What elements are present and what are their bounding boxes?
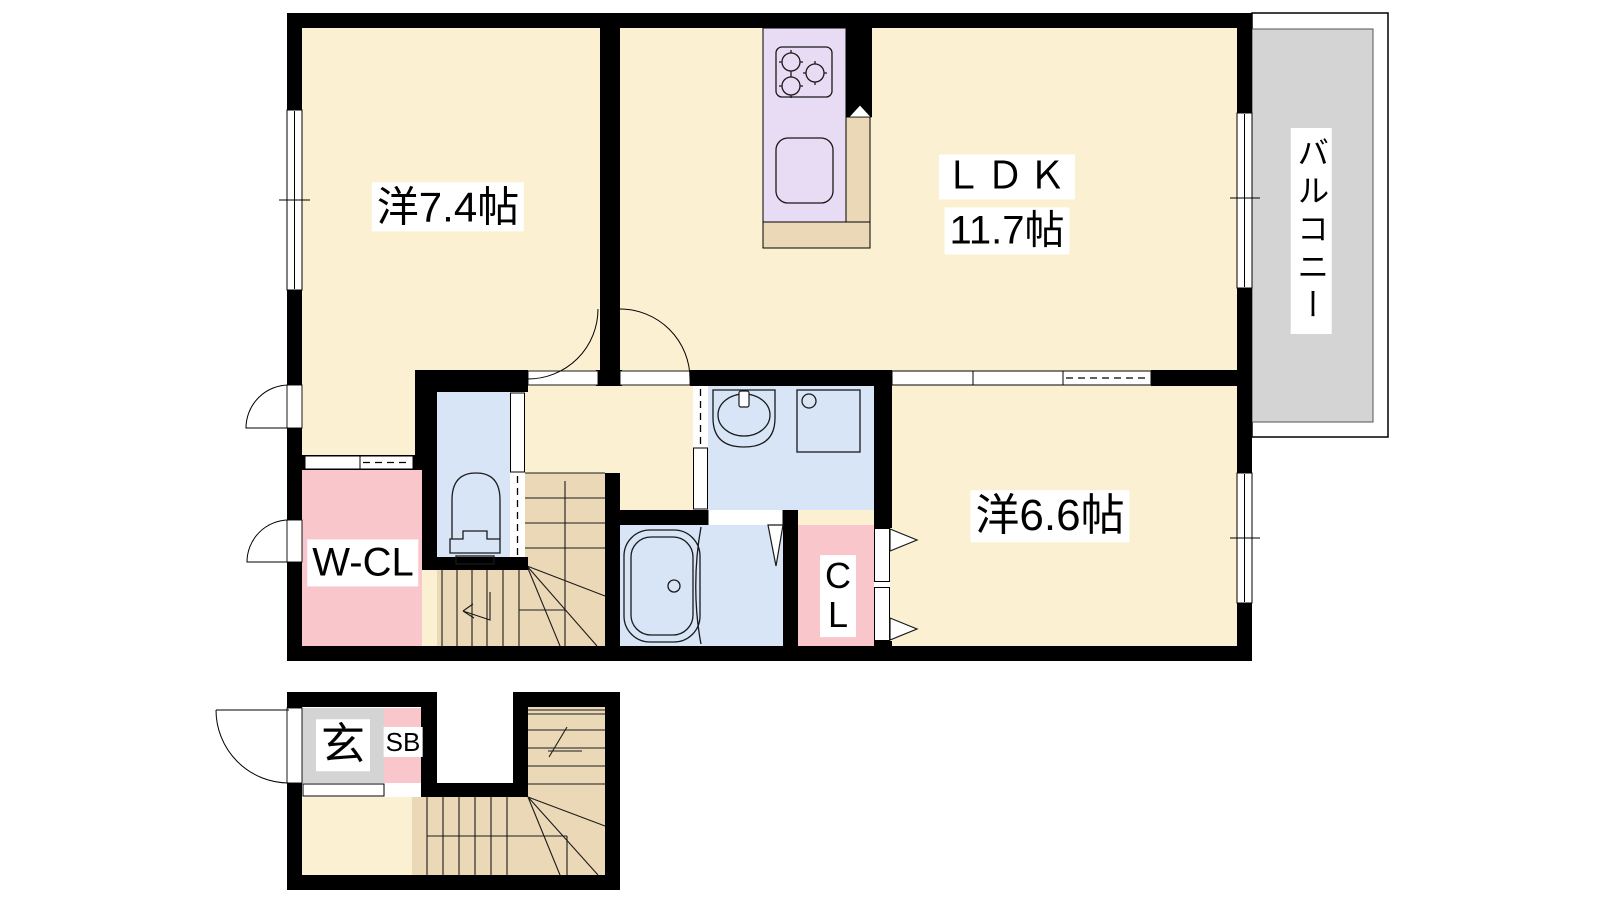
floor-plan: 洋7.4帖 ＬＤＫ 11.7帖 洋6.6帖 W-CL C L バルコニー 玄 S…	[0, 0, 1600, 900]
sliding-door-wcl	[305, 456, 413, 469]
toilet-room	[437, 392, 510, 557]
label-ldk: ＬＤＫ	[939, 154, 1075, 199]
floor-plan-drawing	[0, 0, 1600, 900]
washroom	[708, 386, 874, 510]
label-closet: C L	[820, 555, 856, 637]
label-entrance: 玄	[316, 719, 370, 771]
label-shoe-box: SB	[384, 727, 423, 757]
entrance-step	[303, 784, 384, 796]
sliding-door-toilet	[510, 392, 525, 557]
door-entrance	[216, 708, 302, 783]
sliding-door-washroom	[693, 386, 708, 510]
label-ldk-size: 11.7帖	[945, 207, 1070, 254]
sliding-door-western2	[892, 371, 1151, 385]
label-western-room-1: 洋7.4帖	[372, 182, 524, 231]
label-western-room-2: 洋6.6帖	[970, 490, 1129, 542]
label-walk-in-closet: W-CL	[307, 539, 418, 586]
label-balcony: バルコニー	[1291, 128, 1332, 334]
door-west-1	[246, 385, 302, 428]
bathroom	[620, 525, 783, 646]
door-west-2	[247, 520, 302, 562]
